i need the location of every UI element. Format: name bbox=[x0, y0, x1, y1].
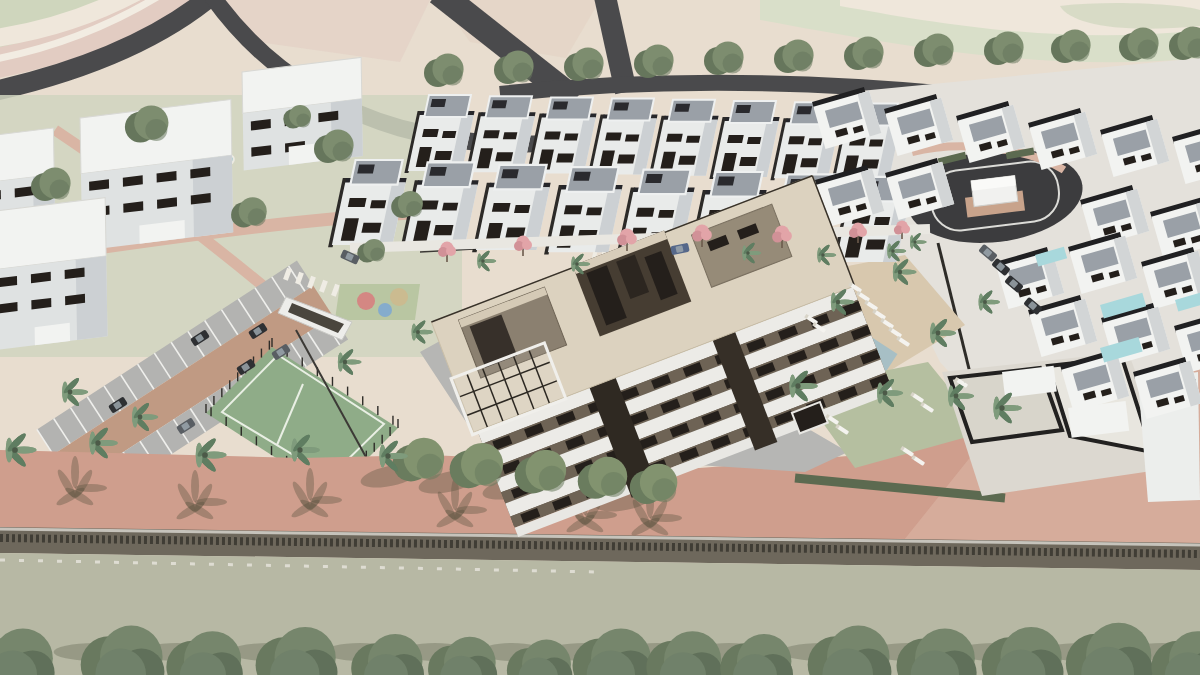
pink-crown bbox=[781, 230, 792, 241]
window bbox=[422, 129, 439, 137]
window bbox=[747, 137, 761, 144]
palm-center bbox=[416, 330, 420, 334]
tree-crown bbox=[583, 60, 603, 80]
palm-center bbox=[68, 390, 73, 395]
stair-box bbox=[552, 101, 568, 109]
palm-center bbox=[202, 452, 208, 458]
pink-crown bbox=[701, 229, 712, 240]
window bbox=[348, 198, 367, 207]
window bbox=[503, 132, 517, 139]
tree-crown bbox=[933, 46, 953, 66]
tree-crown bbox=[50, 180, 70, 200]
window bbox=[788, 136, 805, 144]
palm-center bbox=[385, 453, 390, 458]
tree-crown bbox=[513, 63, 533, 83]
window bbox=[564, 205, 583, 214]
window bbox=[686, 136, 700, 143]
playground-circle bbox=[378, 303, 392, 317]
window bbox=[727, 135, 744, 143]
window bbox=[370, 200, 386, 208]
pink-crown bbox=[522, 240, 532, 250]
window bbox=[361, 223, 381, 233]
palm-center bbox=[481, 259, 485, 263]
palm-center bbox=[999, 405, 1004, 410]
tree-crown bbox=[406, 201, 422, 217]
palm-center bbox=[891, 249, 895, 253]
stair-box bbox=[735, 105, 751, 113]
stair-box bbox=[430, 99, 446, 107]
window bbox=[678, 156, 696, 165]
tree-crown bbox=[333, 142, 353, 162]
window bbox=[739, 157, 757, 166]
palm-center bbox=[983, 300, 987, 304]
stair-box bbox=[645, 174, 663, 183]
window bbox=[869, 139, 883, 146]
pink-crown bbox=[901, 225, 910, 234]
window bbox=[865, 240, 885, 250]
palm-shadow bbox=[71, 456, 79, 488]
window bbox=[636, 208, 655, 217]
palm-center bbox=[138, 415, 143, 420]
tree-crown bbox=[443, 66, 463, 86]
tree-crown bbox=[145, 119, 167, 141]
palm-center bbox=[575, 262, 579, 266]
tree-crown bbox=[601, 472, 626, 497]
window bbox=[495, 152, 513, 161]
window bbox=[808, 138, 822, 145]
architectural-render-view bbox=[0, 0, 1200, 675]
palm-shadow bbox=[306, 468, 314, 500]
stair-box bbox=[573, 172, 591, 181]
pink-crown bbox=[446, 246, 456, 256]
site-plan-render bbox=[0, 0, 1200, 675]
tree-crown bbox=[653, 57, 673, 77]
palm-center bbox=[836, 300, 840, 304]
stair-box bbox=[501, 169, 519, 178]
window bbox=[442, 131, 456, 138]
window bbox=[800, 158, 818, 167]
window bbox=[564, 133, 578, 140]
palm-center bbox=[936, 331, 941, 336]
stair-box bbox=[717, 176, 735, 185]
window bbox=[874, 217, 890, 225]
window bbox=[433, 225, 453, 235]
palm-center bbox=[883, 391, 888, 396]
window bbox=[434, 151, 452, 160]
palm-center bbox=[821, 253, 825, 257]
window bbox=[544, 131, 561, 139]
tree-crown bbox=[1070, 42, 1090, 62]
palm-center bbox=[898, 270, 902, 274]
palm-center bbox=[12, 447, 18, 453]
tree-crown bbox=[863, 49, 883, 69]
tree-crown bbox=[475, 459, 502, 486]
pink-crown bbox=[857, 227, 867, 237]
stair-box bbox=[613, 103, 629, 111]
stair-box bbox=[491, 100, 507, 108]
playground-circle bbox=[357, 292, 375, 310]
palm-center bbox=[95, 440, 100, 445]
tree-crown bbox=[723, 54, 743, 74]
window bbox=[625, 135, 639, 142]
apartment-block bbox=[0, 198, 108, 351]
tree-crown bbox=[296, 114, 310, 128]
window bbox=[556, 153, 574, 162]
palm-center bbox=[746, 251, 750, 255]
window bbox=[442, 203, 458, 211]
window bbox=[666, 134, 683, 142]
palm-center bbox=[954, 394, 959, 399]
window bbox=[514, 205, 530, 213]
pink-crown bbox=[626, 233, 637, 244]
palm-shadow bbox=[191, 470, 199, 502]
window bbox=[605, 133, 622, 141]
palm-center bbox=[343, 360, 347, 364]
palm-center bbox=[913, 240, 916, 243]
palm-center bbox=[297, 447, 302, 452]
tree-crown bbox=[248, 208, 266, 226]
stair-box bbox=[429, 167, 447, 176]
playground-circle bbox=[390, 288, 408, 306]
tree-crown bbox=[539, 466, 565, 492]
window bbox=[617, 155, 635, 164]
window bbox=[586, 208, 602, 216]
window bbox=[492, 203, 511, 212]
tree-crown bbox=[1138, 40, 1158, 60]
tree-crown bbox=[652, 478, 676, 502]
tree-crown bbox=[1003, 44, 1023, 64]
tree-crown bbox=[417, 454, 443, 480]
playground-pad bbox=[335, 284, 420, 320]
stair-box bbox=[674, 104, 690, 112]
tree-crown bbox=[793, 52, 813, 72]
palm-center bbox=[795, 383, 800, 388]
window bbox=[483, 130, 500, 138]
tree-crown bbox=[370, 248, 384, 262]
stair-box bbox=[357, 164, 375, 173]
window bbox=[658, 210, 674, 218]
stair-box bbox=[796, 106, 812, 114]
